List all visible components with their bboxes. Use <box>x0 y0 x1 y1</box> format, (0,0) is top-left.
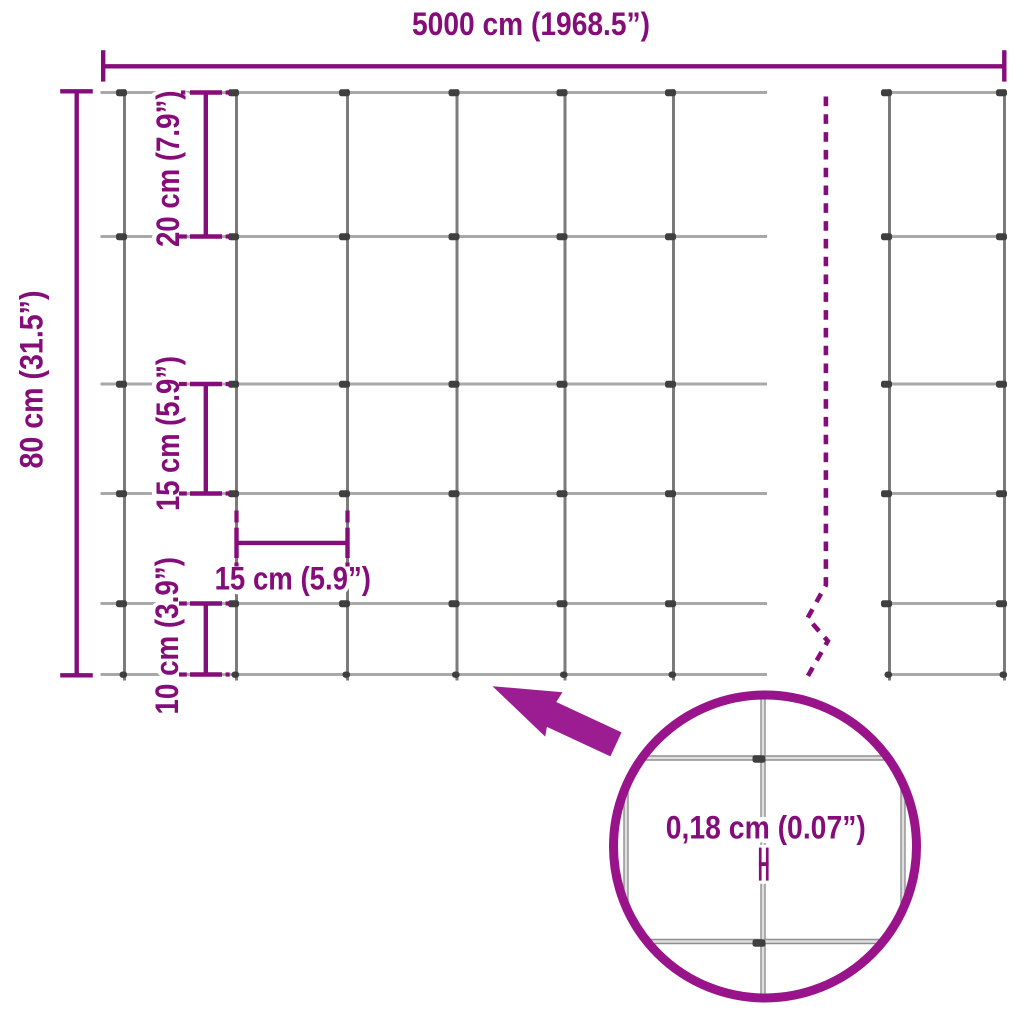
svg-text:20 cm (7.9”): 20 cm (7.9”) <box>150 91 186 248</box>
svg-text:0,18 cm (0.07”): 0,18 cm (0.07”) <box>666 809 866 845</box>
svg-text:5000 cm (1968.5”): 5000 cm (1968.5”) <box>412 6 650 42</box>
svg-text:80 cm (31.5”): 80 cm (31.5”) <box>14 291 50 469</box>
svg-text:15 cm (5.9”): 15 cm (5.9”) <box>150 356 186 511</box>
svg-text:10 cm (3.9”): 10 cm (3.9”) <box>149 557 185 715</box>
